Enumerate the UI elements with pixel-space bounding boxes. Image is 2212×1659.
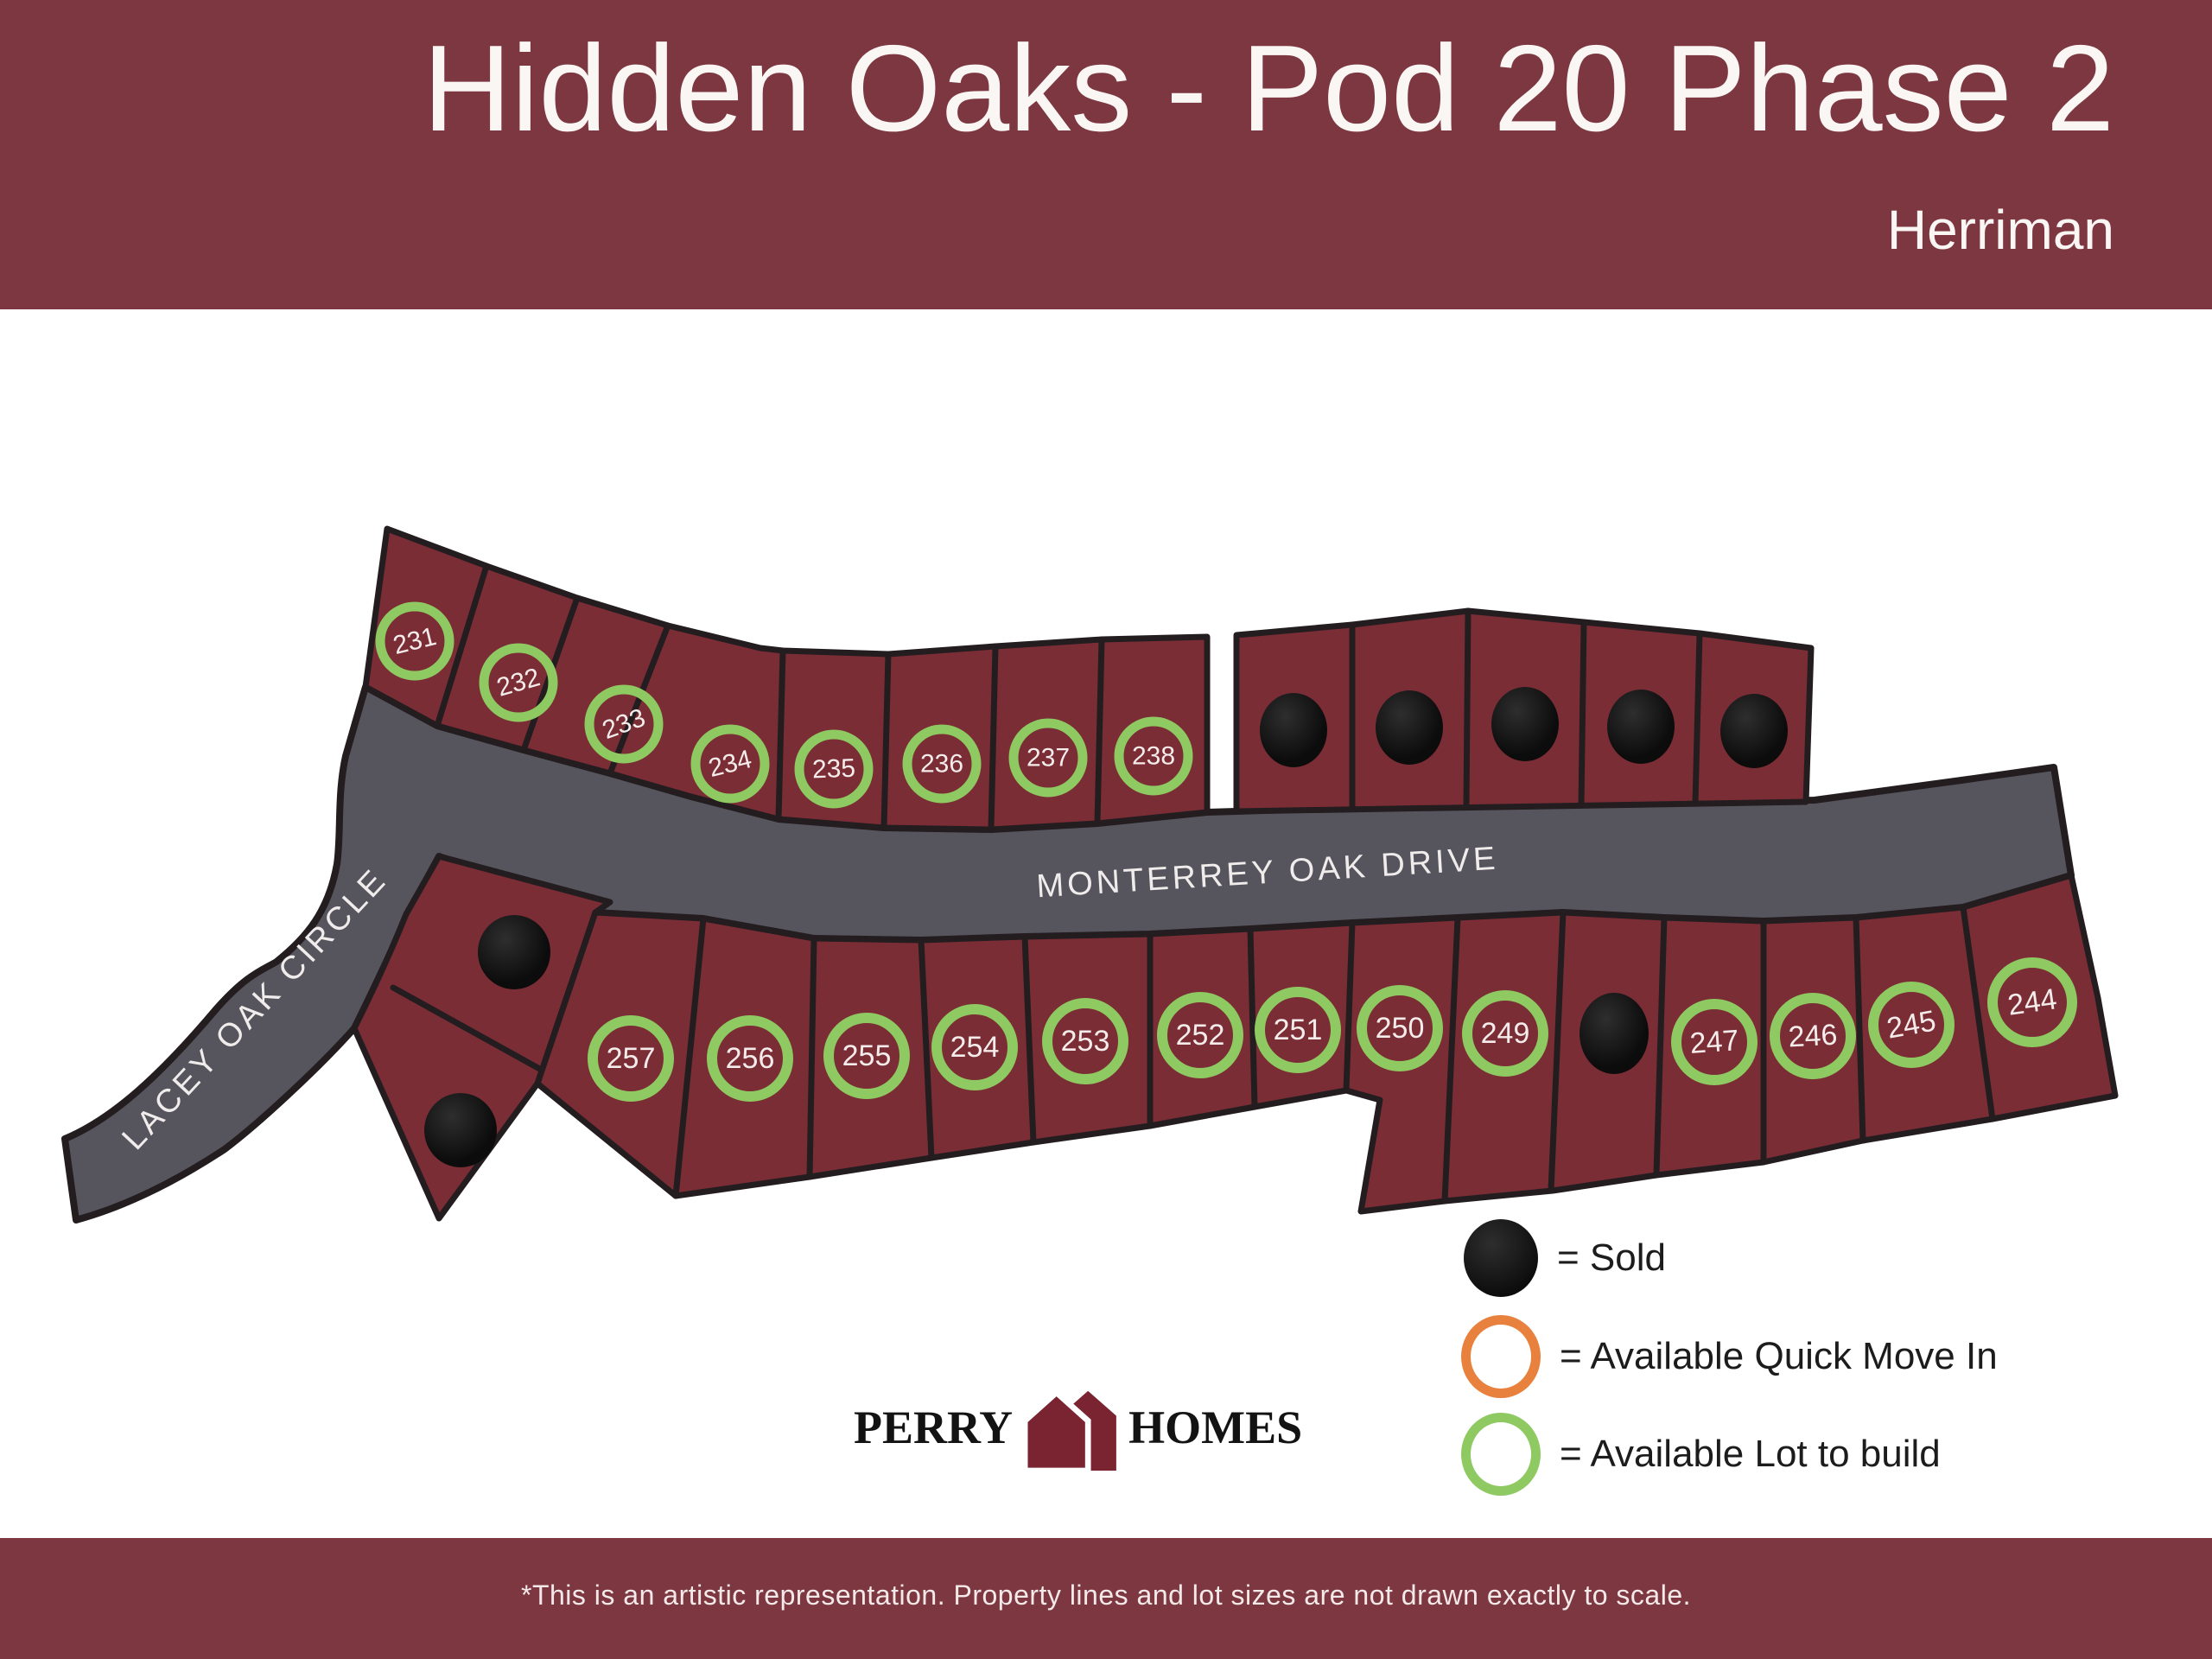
lot-number: 254 [950,1031,1000,1064]
legend-label: = Sold [1557,1236,1666,1280]
sold-lot-marker [1260,693,1327,767]
brand-word-perry: PERRY [854,1401,1013,1454]
lot-number: 244 [2005,982,2058,1022]
sold-lot-marker [1491,687,1559,761]
sold-lot-marker [1376,690,1443,765]
lot-number: 238 [1132,742,1175,771]
lot-number: 252 [1176,1019,1225,1052]
lot-number: 256 [726,1042,775,1075]
legend-label: = Available Quick Move In [1560,1335,1998,1378]
build-ring-icon [1461,1413,1541,1496]
lot-number: 257 [607,1042,656,1075]
sold-lot-marker [1580,993,1649,1074]
brand-logo: PERRY HOMES [854,1381,1302,1474]
lot-number: 237 [1027,744,1070,772]
sold-lot-marker [424,1093,497,1167]
sold-circle-icon [1464,1219,1538,1297]
sold-lot-marker [1607,690,1675,764]
brand-word-homes: HOMES [1128,1401,1302,1454]
disclaimer-text: *This is an artistic representation. Pro… [0,1580,2212,1611]
legend-label: = Available Lot to build [1560,1433,1941,1476]
legend-row-quick-move: = Available Quick Move In [1461,1315,1998,1398]
page-subtitle: Herriman [1887,202,2114,257]
lot-number: 235 [811,754,855,785]
page-title: Hidden Oaks - Pod 20 Phase 2 [423,28,2114,150]
sold-lot-marker [1720,694,1788,768]
legend-row-sold: = Sold [1464,1219,1666,1297]
lot-number: 236 [920,750,963,779]
lot-number: 247 [1688,1024,1739,1060]
lot-number: 253 [1061,1025,1110,1058]
lot-number: 249 [1481,1017,1530,1050]
sold-lot-marker [478,915,550,989]
lot-number: 250 [1376,1012,1425,1045]
legend-row-lot-to-build: = Available Lot to build [1461,1413,1941,1496]
lot-number: 255 [842,1039,892,1072]
lot-number: 251 [1274,1014,1323,1046]
lot-number: 246 [1788,1019,1839,1054]
house-icon [1023,1384,1118,1471]
quick-move-ring-icon [1461,1315,1541,1398]
